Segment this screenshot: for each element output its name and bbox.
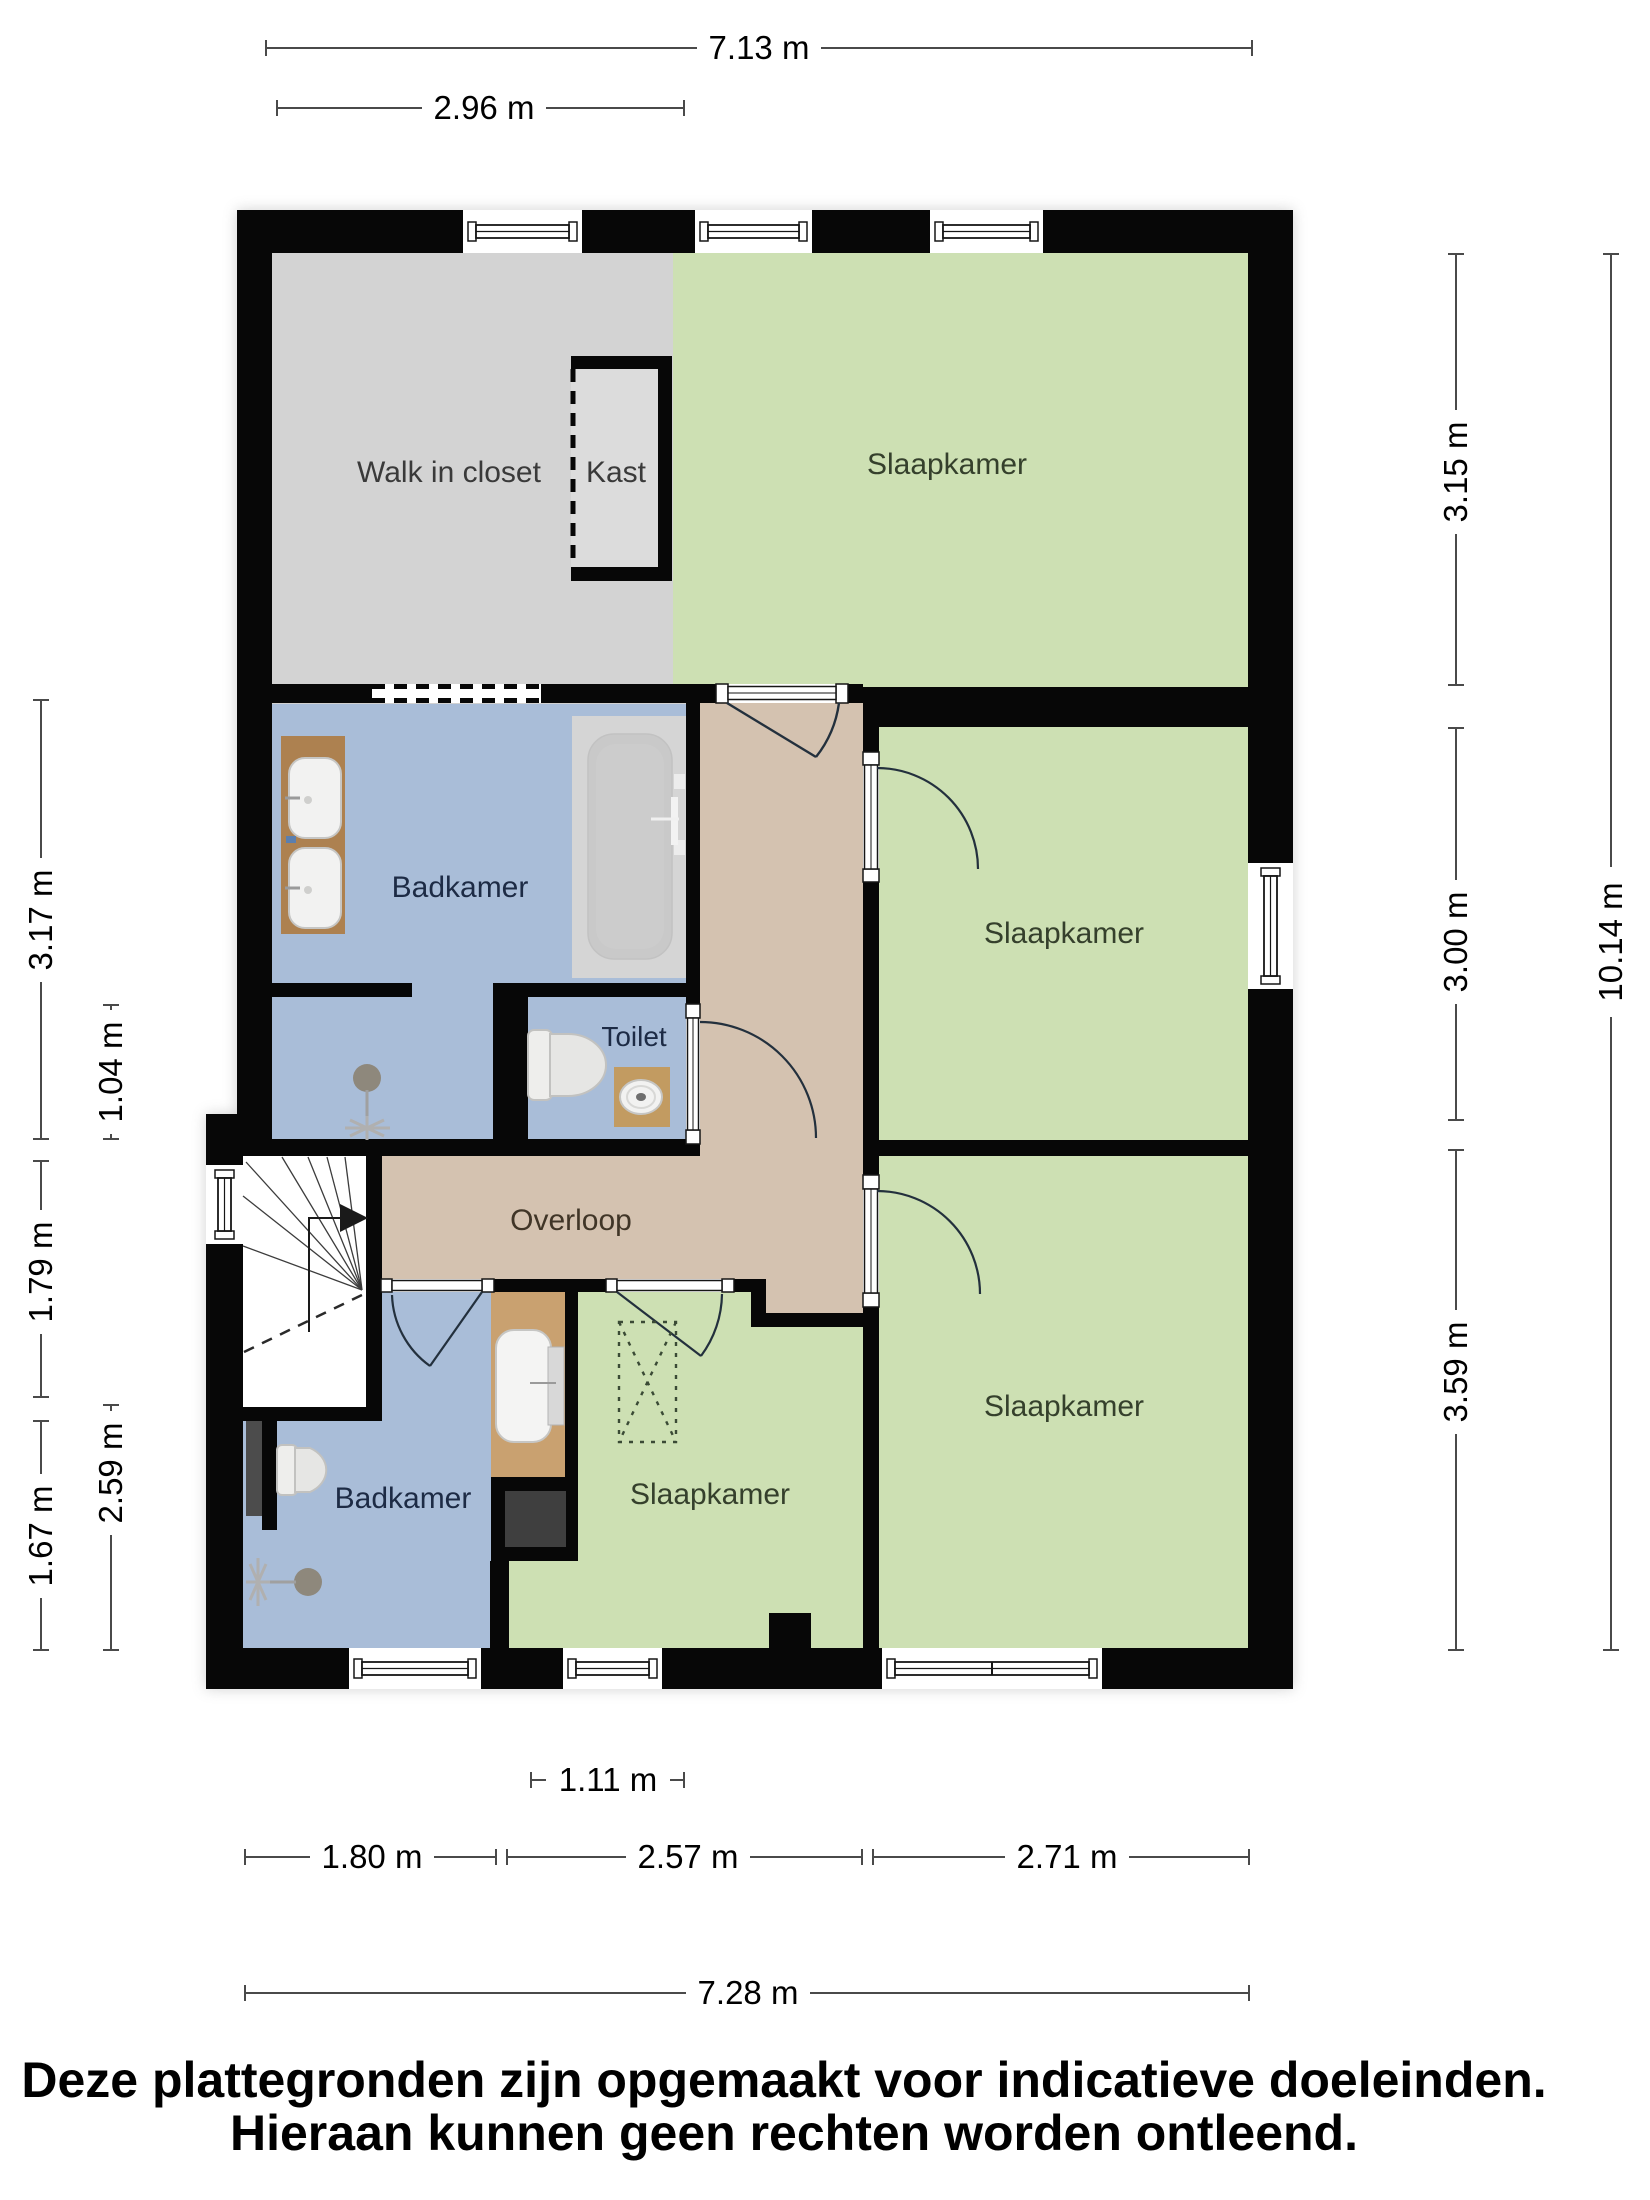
svg-text:2.71 m: 2.71 m bbox=[1017, 1838, 1118, 1875]
svg-text:Slaapkamer: Slaapkamer bbox=[867, 448, 1027, 481]
svg-text:1.04 m: 1.04 m bbox=[92, 1022, 129, 1123]
svg-text:1.67 m: 1.67 m bbox=[22, 1486, 59, 1587]
svg-text:2.57 m: 2.57 m bbox=[638, 1838, 739, 1875]
svg-text:Walk in closet: Walk in closet bbox=[357, 456, 542, 489]
svg-text:1.11 m: 1.11 m bbox=[559, 1761, 657, 1798]
svg-text:Badkamer: Badkamer bbox=[335, 1482, 472, 1515]
svg-text:Slaapkamer: Slaapkamer bbox=[984, 1390, 1144, 1423]
svg-text:1.79 m: 1.79 m bbox=[22, 1222, 59, 1323]
svg-text:3.15 m: 3.15 m bbox=[1437, 422, 1474, 523]
svg-text:7.28 m: 7.28 m bbox=[698, 1974, 799, 2011]
svg-text:Slaapkamer: Slaapkamer bbox=[630, 1478, 790, 1511]
svg-text:Hieraan kunnen geen rechten wo: Hieraan kunnen geen rechten worden ontle… bbox=[230, 2105, 1358, 2161]
svg-text:2.96 m: 2.96 m bbox=[434, 89, 535, 126]
svg-text:3.00 m: 3.00 m bbox=[1437, 892, 1474, 993]
svg-text:Overloop: Overloop bbox=[510, 1204, 632, 1237]
svg-text:Toilet: Toilet bbox=[601, 1021, 667, 1052]
svg-text:3.59 m: 3.59 m bbox=[1437, 1322, 1474, 1423]
svg-text:10.14 m: 10.14 m bbox=[1592, 882, 1629, 1001]
svg-text:Deze plattegronden zijn opgema: Deze plattegronden zijn opgemaakt voor i… bbox=[21, 2052, 1546, 2108]
svg-text:Slaapkamer: Slaapkamer bbox=[984, 917, 1144, 950]
svg-text:Kast: Kast bbox=[586, 456, 647, 489]
svg-text:3.17 m: 3.17 m bbox=[22, 870, 59, 971]
svg-text:Badkamer: Badkamer bbox=[392, 871, 529, 904]
svg-text:7.13 m: 7.13 m bbox=[709, 29, 810, 66]
svg-text:1.80 m: 1.80 m bbox=[322, 1838, 423, 1875]
svg-text:2.59 m: 2.59 m bbox=[92, 1423, 129, 1524]
